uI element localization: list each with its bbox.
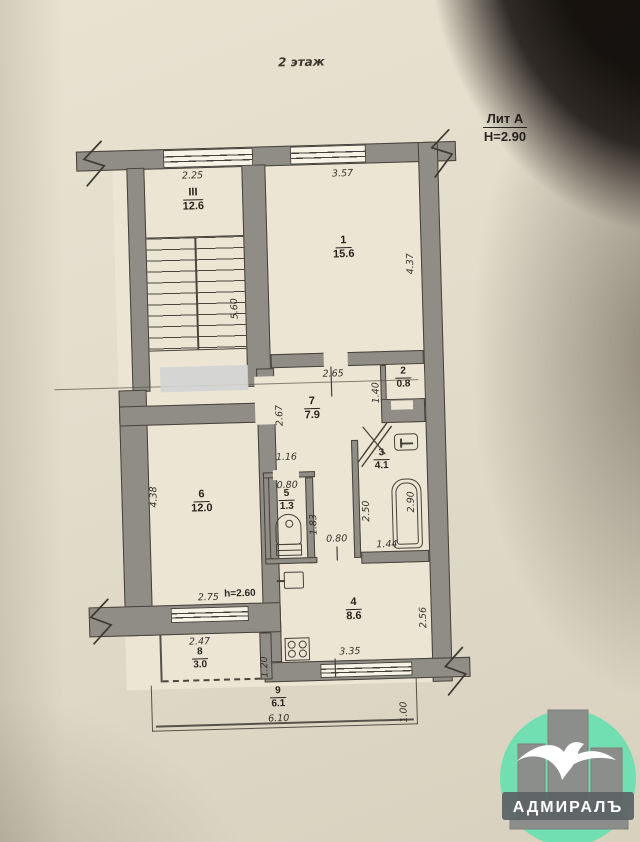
room-1-label: 1 15.6 xyxy=(303,233,384,263)
window-room1 xyxy=(290,145,366,165)
dim-closet-height: 1.40 xyxy=(370,363,382,403)
ceiling-height-note: h=2.60 xyxy=(224,588,256,600)
dim-wc-depth: 1.83 xyxy=(307,493,319,535)
toilet-bowl-icon xyxy=(275,513,302,545)
door-closet xyxy=(391,400,413,410)
floor-plan: III 12.6 1 15.6 2 0.8 7 7.9 3 4.1 5 1.3 … xyxy=(67,128,494,754)
watermark-logo: АДМИРАЛЪ xyxy=(494,696,640,842)
room-8-label: 8 3.0 xyxy=(176,646,225,672)
dim-room1-depth: 4.37 xyxy=(404,228,416,274)
stove-icon xyxy=(284,637,310,661)
dim-passage-width: 0.80 xyxy=(319,533,355,545)
room-6-label: 6 12.0 xyxy=(161,487,242,517)
window-stairwell xyxy=(163,148,253,169)
door-room1 xyxy=(323,350,347,369)
floor-title: 2 этаж xyxy=(278,55,325,70)
scanned-floorplan-photo: 2 этаж Лит А H=2.90 xyxy=(0,0,640,842)
dim-wc-block-width: 1.16 xyxy=(264,451,308,463)
room-stairwell-label: III 12.6 xyxy=(153,185,234,215)
room-9-label: 9 6.1 xyxy=(253,684,304,710)
dim-room1-width: 3.57 xyxy=(318,168,366,180)
dim-stair-width: 2.25 xyxy=(168,170,216,182)
dim-room8-depth: 1.20 xyxy=(259,639,271,677)
dim-wc-width: 0.80 xyxy=(267,479,307,491)
dim-room6-depth: 4.38 xyxy=(148,463,160,507)
dim-bath-width: 1.44 xyxy=(367,539,407,551)
dim-stair-depth: 5.60 xyxy=(228,273,240,319)
window-kitchen xyxy=(320,661,412,678)
room-4-label: 4 8.6 xyxy=(313,595,394,625)
dim-bath-depth-right: 2.90 xyxy=(405,466,417,512)
redacted-label xyxy=(160,365,249,392)
dim-kitchen-depth: 2.56 xyxy=(417,584,429,628)
room-3-label: 3 4.1 xyxy=(359,447,404,473)
wall-bath-bottom xyxy=(361,550,429,564)
dim-room8-width: 2.47 xyxy=(175,636,223,648)
room-2-label: 2 0.8 xyxy=(384,365,423,391)
dim-bath-depth-left: 2.50 xyxy=(360,477,372,521)
sink-icon xyxy=(284,571,304,589)
window-room6 xyxy=(171,606,249,623)
dim-hall-width: 2.65 xyxy=(309,368,357,380)
ceiling-height-label: H=2.90 xyxy=(468,129,542,144)
liter-label: Лит А xyxy=(483,111,527,128)
dim-balcony-length: 6.10 xyxy=(254,712,304,724)
toilet-tank-icon xyxy=(276,543,302,556)
dim-balcony-width: 1.00 xyxy=(398,687,410,723)
dim-kitchen-window: 3.35 xyxy=(326,645,374,657)
logo-text: АДМИРАЛЪ xyxy=(513,799,624,816)
liter-block: Лит А H=2.90 xyxy=(468,110,542,144)
dim-hall-depth: 2.67 xyxy=(273,386,285,426)
